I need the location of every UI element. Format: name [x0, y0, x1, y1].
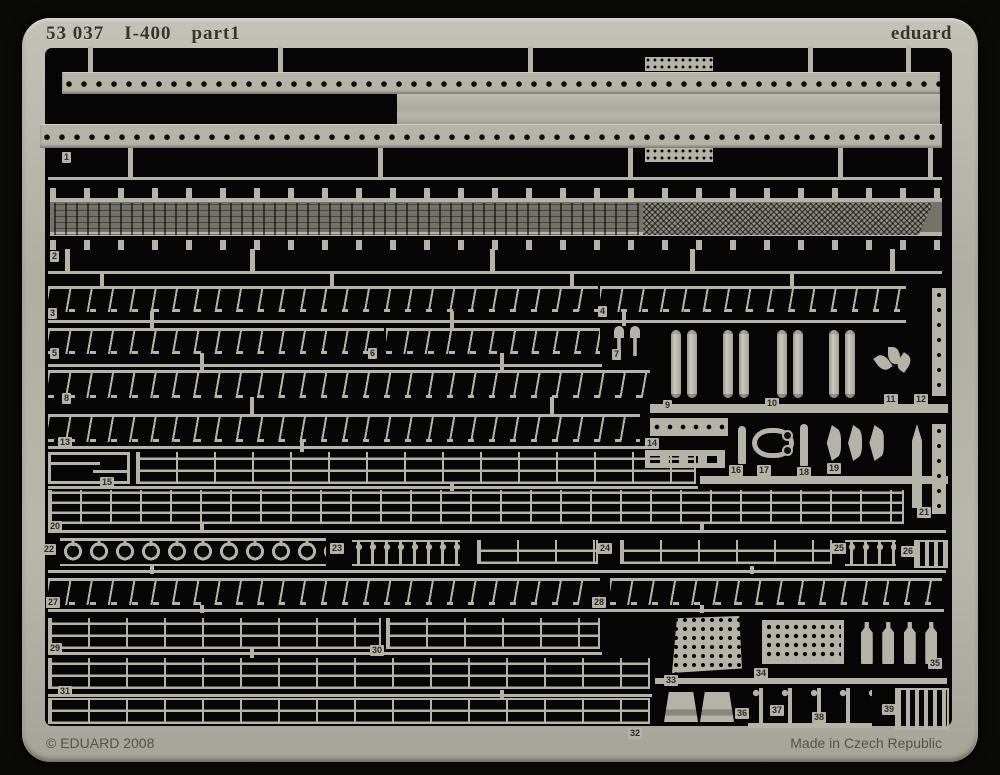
part-number-label: 16	[729, 465, 743, 476]
part-number-label: 10	[765, 398, 779, 409]
part-number-label: 26	[901, 546, 915, 557]
attachment-tab	[500, 690, 504, 698]
sprue-runner	[48, 609, 944, 612]
copyright-text: © EDUARD 2008	[46, 735, 154, 751]
part-number-label: 38	[812, 712, 826, 723]
sprue-runner	[48, 320, 906, 323]
bottle-shape	[904, 622, 916, 664]
sprue-runner	[48, 271, 942, 274]
part-number-label: 11	[884, 394, 898, 405]
part-number-label: 20	[48, 521, 62, 532]
part-number-label: 39	[882, 704, 896, 715]
sprue-runner	[655, 678, 947, 684]
pe-part-22	[60, 538, 326, 566]
pe-part-15	[136, 452, 696, 484]
pe-part-26	[914, 540, 948, 568]
part-number-label: 7	[612, 349, 621, 360]
sprue-runner	[48, 652, 602, 655]
attachment-tab	[250, 249, 255, 271]
torp-shape	[687, 330, 697, 398]
pe-part-28	[610, 578, 942, 605]
pe-part-3	[48, 286, 598, 312]
attachment-tab	[528, 46, 533, 73]
pe-part-32	[48, 698, 650, 724]
part-number-label: 27	[46, 597, 60, 608]
part-number-label: 19	[827, 463, 841, 474]
sprue-runner	[48, 570, 946, 573]
part-number-label: 6	[368, 348, 377, 359]
part-number-label: 3	[48, 308, 57, 319]
pe-part-5	[48, 328, 384, 354]
pe-part-1	[645, 148, 713, 162]
part-number-label: 35	[928, 658, 942, 669]
pe-part-6	[386, 328, 600, 354]
made-in-text: Made in Czech Republic	[790, 735, 942, 751]
pe-part-1	[397, 94, 940, 125]
pe-part-34	[762, 620, 844, 664]
pe-part-10	[770, 328, 810, 400]
funnel-shape	[664, 692, 698, 722]
brand-logo: eduard	[891, 23, 952, 45]
pe-part-4	[600, 286, 906, 312]
attachment-tab	[450, 311, 454, 328]
sprue-runner	[48, 530, 946, 533]
part-number-label: 22	[42, 544, 56, 555]
part-number-label: 31	[58, 686, 72, 697]
part-number-label: 8	[62, 393, 71, 404]
pe-part-19	[820, 424, 888, 462]
part-number-label: 30	[370, 645, 384, 656]
attachment-tab	[700, 524, 704, 532]
pe-part-30	[386, 618, 600, 649]
part-number-label: 34	[754, 668, 768, 679]
part-number-label: 5	[50, 348, 59, 359]
attachment-tab	[790, 273, 794, 286]
part-number-label: 15	[100, 477, 114, 488]
pe-part-1	[645, 57, 713, 71]
torp-shape	[829, 330, 839, 398]
attachment-tab	[490, 249, 495, 271]
attachment-tab	[550, 397, 554, 414]
sprue-runner	[48, 446, 648, 449]
crescent-shape	[867, 425, 884, 461]
attachment-tab	[88, 46, 93, 73]
part-number-label: 24	[598, 543, 612, 554]
torp-shape	[671, 330, 681, 398]
pe-part-8	[48, 370, 650, 398]
pe-part-23	[352, 540, 460, 566]
pe-part-12	[932, 288, 946, 396]
torp-shape	[739, 330, 749, 398]
part-number-label: 12	[914, 394, 928, 405]
pe-part-9	[716, 328, 756, 400]
etched-parts-field: 1234567891011121314151617181920212223242…	[45, 48, 952, 726]
part-number-label: 23	[330, 543, 344, 554]
sheet-title: 53 037 I-400 part1	[46, 23, 241, 45]
attachment-tab	[200, 524, 204, 532]
pe-part-16	[738, 426, 746, 464]
attachment-tab	[500, 353, 504, 370]
pe-part-33	[672, 616, 742, 673]
torp-shape	[777, 330, 787, 398]
torp-shape	[723, 330, 733, 398]
part-number-label: 17	[757, 465, 771, 476]
attachment-tab	[838, 146, 843, 177]
pe-part-31	[48, 658, 650, 689]
attachment-tab	[750, 566, 754, 574]
part-number-label: 1	[62, 152, 71, 163]
sprue-runner	[48, 177, 942, 180]
photo-etch-sheet-photo: 53 037 I-400 part1 eduard 12345678910111…	[0, 0, 1000, 775]
pe-part-24	[477, 540, 598, 564]
crescent-shape	[824, 425, 841, 461]
attachment-tab	[690, 249, 695, 271]
attachment-tab	[150, 566, 154, 574]
pe-part-29	[48, 618, 381, 649]
torp-shape	[793, 330, 803, 398]
part-number-label: 9	[663, 400, 672, 411]
part-number-label: 2	[50, 251, 59, 262]
pe-fret-frame: 53 037 I-400 part1 eduard 12345678910111…	[22, 18, 978, 762]
attachment-tab	[928, 146, 933, 177]
pe-part-9	[664, 328, 704, 400]
pe-part-13	[48, 414, 640, 442]
pe-part-10	[822, 328, 862, 400]
attachment-tab	[570, 273, 574, 286]
part-number-label: 21	[917, 507, 931, 518]
part-number-label: 32	[628, 728, 642, 739]
part-number-label: 28	[592, 597, 606, 608]
pe-part-39	[895, 688, 949, 730]
pin2-shape	[630, 326, 640, 356]
model-name: I-400	[124, 23, 171, 45]
funnel-shape	[700, 692, 734, 722]
part-number-label: 33	[664, 675, 678, 686]
attachment-tab	[100, 273, 104, 286]
attachment-tab	[378, 146, 383, 177]
attachment-tab	[150, 311, 154, 328]
pe-part-1	[40, 124, 942, 148]
pe-part-15	[48, 452, 130, 484]
attachment-tab	[622, 311, 626, 326]
attachment-tab	[808, 46, 813, 73]
pe-part-1	[62, 72, 940, 94]
pe-part-18	[800, 424, 808, 466]
part-number-label: 36	[735, 708, 749, 719]
attachment-tab	[278, 46, 283, 73]
attachment-tab	[890, 249, 895, 271]
part-number-label: 13	[58, 437, 72, 448]
part-number-label: 14	[645, 438, 659, 449]
sprue-runner	[650, 404, 948, 413]
attachment-tab	[330, 273, 334, 286]
pe-part-37	[748, 688, 872, 728]
torp-shape	[845, 330, 855, 398]
sprue-runner	[48, 694, 652, 697]
part-number-label: 4	[598, 306, 607, 317]
sprue-runner	[700, 476, 948, 484]
attachment-tab	[200, 353, 204, 370]
part-number-label: 37	[770, 705, 784, 716]
pe-part-21	[932, 424, 946, 514]
part-number-label: 29	[48, 643, 62, 654]
bottle-shape	[861, 622, 873, 664]
pe-part-21	[912, 424, 922, 508]
pe-part-36	[662, 692, 736, 722]
part-name: part1	[191, 23, 240, 45]
attachment-tab	[128, 146, 133, 177]
attachment-tab	[250, 649, 254, 658]
attachment-tab	[300, 441, 304, 452]
pe-part-2	[50, 188, 942, 250]
sprue-runner	[48, 364, 602, 367]
part-number-label: 25	[832, 543, 846, 554]
attachment-tab	[700, 605, 704, 613]
pe-part-14	[650, 418, 728, 436]
sprue-runner	[48, 486, 698, 489]
pe-part-17	[752, 428, 794, 458]
pe-part-27	[48, 578, 600, 605]
bottle-shape	[882, 622, 894, 664]
attachment-tab	[200, 605, 204, 613]
attachment-tab	[628, 146, 633, 177]
crescent-shape	[845, 425, 862, 461]
part-number-label: 18	[797, 467, 811, 478]
pe-part-25	[845, 540, 896, 566]
attachment-tab	[906, 46, 911, 73]
catalog-number: 53 037	[46, 23, 104, 45]
pe-part-11	[876, 346, 912, 392]
pe-part-24	[620, 540, 832, 564]
attachment-tab	[65, 249, 70, 271]
pe-part-20	[48, 490, 904, 524]
attachment-tab	[250, 397, 254, 414]
